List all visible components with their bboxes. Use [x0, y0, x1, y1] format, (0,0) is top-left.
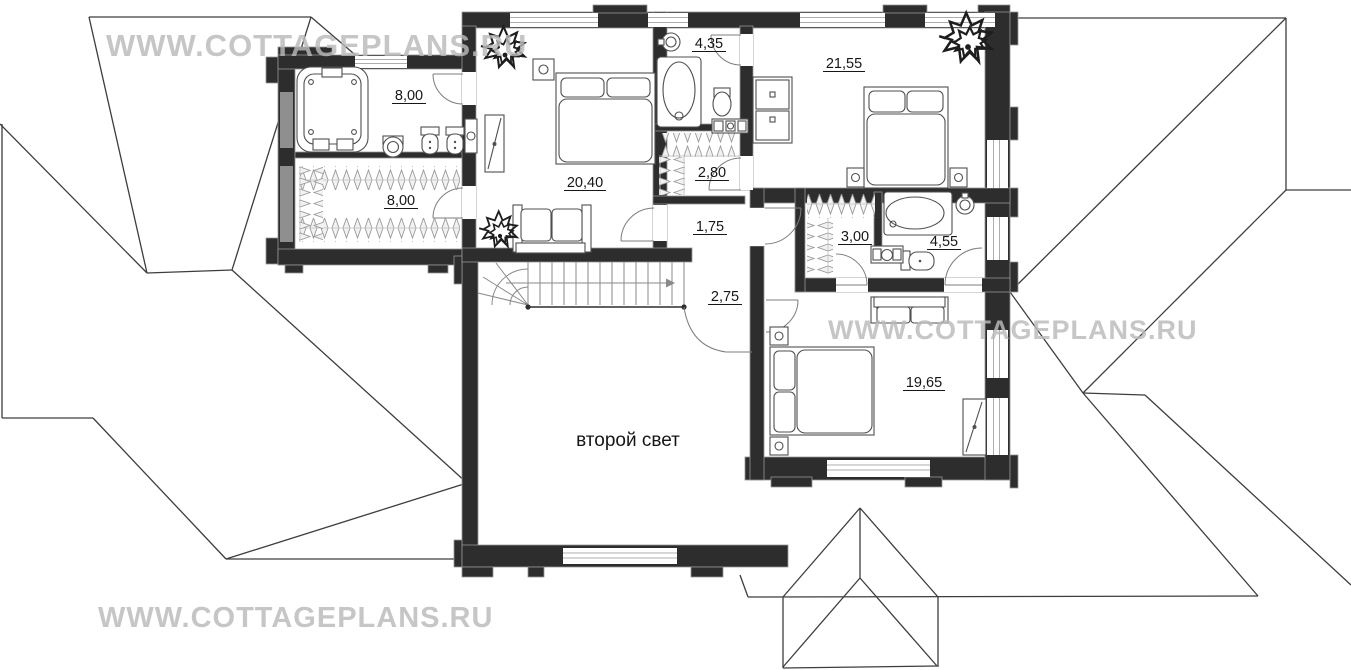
bidet-icon: [446, 127, 464, 154]
wardrobe-cabinet: [753, 77, 792, 143]
bed: [556, 73, 655, 164]
jacuzzi-icon: [297, 67, 368, 152]
nightstand-icon: [770, 327, 788, 345]
nightstand-icon: [533, 59, 554, 80]
bed: [770, 347, 874, 435]
toilet-icon: [901, 251, 934, 270]
window: [510, 13, 598, 27]
room-area-label: 4,55: [930, 234, 958, 250]
room-area-label: 2,75: [711, 289, 739, 305]
floor-plan-page: 8,00 8,00 20,40 4,35 2,80 1,75 21,55 3,0…: [0, 0, 1351, 670]
watermark: WWW.COTTAGEPLANS.RU: [98, 602, 493, 635]
room-area-label: 3,00: [841, 229, 869, 245]
tv-icon: [485, 115, 504, 172]
watermark: WWW.COTTAGEPLANS.RU: [106, 28, 527, 64]
watermark: WWW.COTTAGEPLANS.RU: [828, 315, 1197, 346]
second-light-label: второй свет: [576, 430, 680, 451]
window: [987, 140, 1008, 188]
bathtub-icon: [657, 57, 701, 127]
bidet-icon: [421, 127, 439, 154]
window: [800, 13, 885, 27]
sink-icon: [383, 136, 403, 157]
room-area-label: 8,00: [395, 88, 423, 104]
room-area-label: 2,80: [698, 165, 726, 181]
nightstand-icon: [770, 437, 788, 455]
window: [648, 13, 688, 27]
bathtub-icon: [884, 192, 952, 235]
window: [827, 460, 930, 477]
washbasin-counter: [871, 246, 903, 263]
room-area-label: 1,75: [696, 219, 724, 235]
radiator-icon: [465, 119, 477, 153]
room-area-label: 4,35: [695, 36, 723, 52]
sofa: [513, 205, 591, 253]
window: [987, 398, 1008, 455]
room-area-label: 21,55: [826, 56, 862, 72]
washbasin-icon: [713, 88, 731, 116]
room-area-label: 20,40: [567, 175, 603, 191]
window: [280, 92, 293, 148]
roof-tower-bottom: [783, 508, 938, 668]
nightstand-icon: [847, 168, 864, 187]
tv-icon: [963, 399, 986, 455]
window: [280, 166, 293, 242]
nightstand-icon: [950, 168, 967, 187]
vanity-counter: [712, 119, 748, 133]
window: [563, 548, 677, 564]
window: [987, 217, 1008, 260]
room-area-label: 19,65: [906, 375, 942, 391]
room-area-label: 8,00: [387, 193, 415, 209]
bed: [864, 87, 948, 188]
